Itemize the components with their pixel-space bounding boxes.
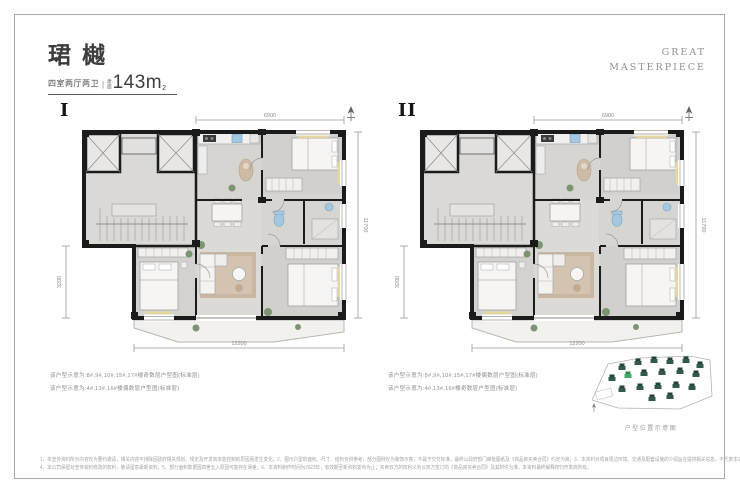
plan-2-caption-1: 该户型示意为:8#,9#,10#,15#,17#楼偶数层户型图(标准层) bbox=[388, 370, 538, 383]
plan-1-caption-2: 该户型示意为:4#,13#,16#楼偶数层户型图(标准层) bbox=[50, 383, 200, 396]
floorplan-1-image: 6900 11700 3200 12200 bbox=[46, 104, 376, 356]
dim-left-label: 3200 bbox=[395, 276, 401, 288]
site-plan-map bbox=[578, 352, 724, 416]
area-superscript: 2 bbox=[162, 85, 166, 92]
plan-2-caption-2: 该户型示意为:4#,13#,16#楼奇数层户型图(标准层) bbox=[388, 383, 538, 396]
disclaimer-line-1: 1、本宣传资料所示内容仅为要约邀请，相关内容不排除因政府相关规划、规定及开发商未… bbox=[40, 456, 647, 464]
dim-left-label: 3200 bbox=[57, 276, 63, 288]
disclaimer: 1、本宣传资料所示内容仅为要约邀请，相关内容不排除因政府相关规划、规定及开发商未… bbox=[40, 456, 700, 472]
area-prefix-label: 建面 bbox=[107, 79, 112, 92]
subtitle: 四室两厅两卫 | 建面 143m 2 bbox=[48, 74, 177, 95]
floorplan-2-image: 6900 11700 3200 12200 bbox=[384, 104, 714, 356]
brand-mark: GREAT MASTERPIECE bbox=[609, 46, 706, 75]
plan-1-caption-1: 该户型示意为:8#,9#,10#,15#,17#楼奇数层户型图(标准层) bbox=[50, 370, 200, 383]
dim-bottom-label: 12200 bbox=[569, 341, 584, 347]
brand-line-1: GREAT bbox=[609, 46, 706, 61]
area-value: 143m bbox=[113, 74, 163, 92]
dim-top-label: 6900 bbox=[264, 113, 276, 119]
dim-right-label: 11700 bbox=[362, 218, 368, 233]
floorplan-brochure-page: 珺樾 四室两厅两卫 | 建面 143m 2 GREAT MASTERPIECE … bbox=[0, 0, 740, 493]
dim-right-label: 11700 bbox=[700, 218, 706, 233]
site-plan: 户型位置示意图 bbox=[578, 352, 724, 432]
dim-top-label: 6900 bbox=[602, 113, 614, 119]
disclaimer-line-2: 4、本公司保留对宣传资料修改的权利，敬请留意最新资料；5、部分面积数据因四舍五入… bbox=[40, 464, 647, 472]
subtitle-divider: | bbox=[102, 80, 104, 92]
dim-bottom-label: 12200 bbox=[231, 341, 246, 347]
page-title: 珺樾 bbox=[48, 36, 116, 70]
site-building-highlighted bbox=[625, 372, 632, 379]
site-boundary bbox=[592, 356, 712, 409]
site-north-arrow-icon bbox=[592, 403, 596, 412]
plan-2-captions: 该户型示意为:8#,9#,10#,15#,17#楼偶数层户型图(标准层) 该户型… bbox=[388, 370, 538, 396]
site-plan-caption: 户型位置示意图 bbox=[578, 423, 724, 432]
plan-1-captions: 该户型示意为:8#,9#,10#,15#,17#楼奇数层户型图(标准层) 该户型… bbox=[50, 370, 200, 396]
brand-line-2: MASTERPIECE bbox=[609, 61, 706, 76]
floorplan-unit-1: I 6900 11700 3200 12200 该户型示意为:8#,9#,10#… bbox=[46, 98, 376, 398]
room-count-label: 四室两厅两卫 bbox=[48, 78, 99, 92]
